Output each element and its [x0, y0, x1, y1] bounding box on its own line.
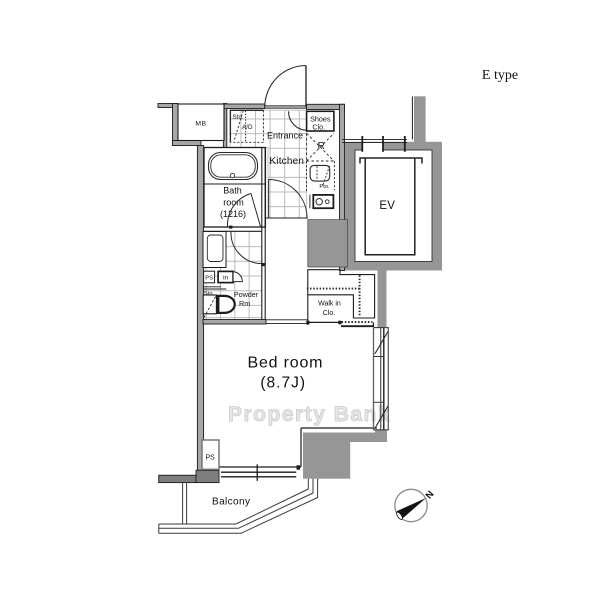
svg-text:EV: EV: [379, 200, 395, 212]
svg-text:Property Bank: Property Bank: [228, 403, 391, 426]
svg-text:Bath: Bath: [223, 186, 242, 196]
svg-text:Balcony: Balcony: [212, 497, 250, 508]
svg-text:PS: PS: [205, 276, 213, 282]
svg-text:Sto.: Sto.: [233, 114, 244, 121]
svg-text:Powder: Powder: [234, 290, 259, 299]
svg-text:E type: E type: [482, 68, 518, 83]
svg-text:Clo.: Clo.: [323, 310, 336, 317]
svg-text:in: in: [223, 275, 228, 282]
svg-text:R: R: [318, 141, 325, 152]
svg-text:Kitchen: Kitchen: [269, 156, 304, 167]
svg-text:(8.7J): (8.7J): [260, 375, 306, 392]
svg-text:Clo.: Clo.: [312, 123, 325, 132]
svg-text:PS: PS: [206, 455, 216, 462]
svg-text:MB: MB: [195, 121, 206, 128]
svg-text:A/D: A/D: [242, 124, 253, 131]
svg-text:Bed room: Bed room: [248, 355, 324, 372]
svg-text:Entrance: Entrance: [267, 130, 303, 140]
svg-text:(1216): (1216): [220, 209, 246, 219]
svg-text:Walk in: Walk in: [318, 301, 341, 308]
svg-text:Rm: Rm: [239, 299, 250, 308]
svg-text:Pto.: Pto.: [319, 184, 330, 190]
